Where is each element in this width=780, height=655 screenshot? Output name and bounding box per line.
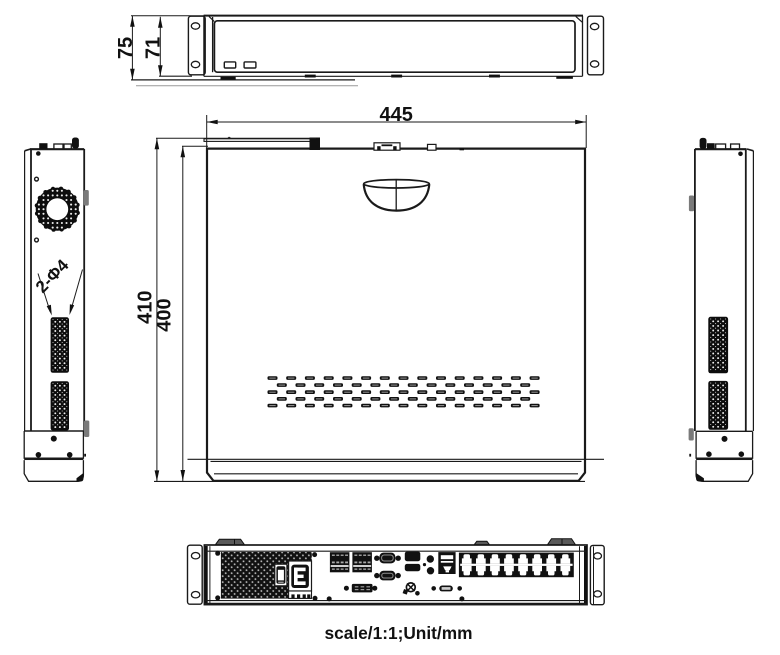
svg-text:75: 75 [115, 37, 137, 59]
svg-text:scale/1:1;Unit/mm: scale/1:1;Unit/mm [325, 623, 473, 643]
svg-text:71: 71 [143, 37, 165, 59]
svg-text:445: 445 [380, 104, 413, 126]
svg-text:400: 400 [153, 298, 175, 331]
